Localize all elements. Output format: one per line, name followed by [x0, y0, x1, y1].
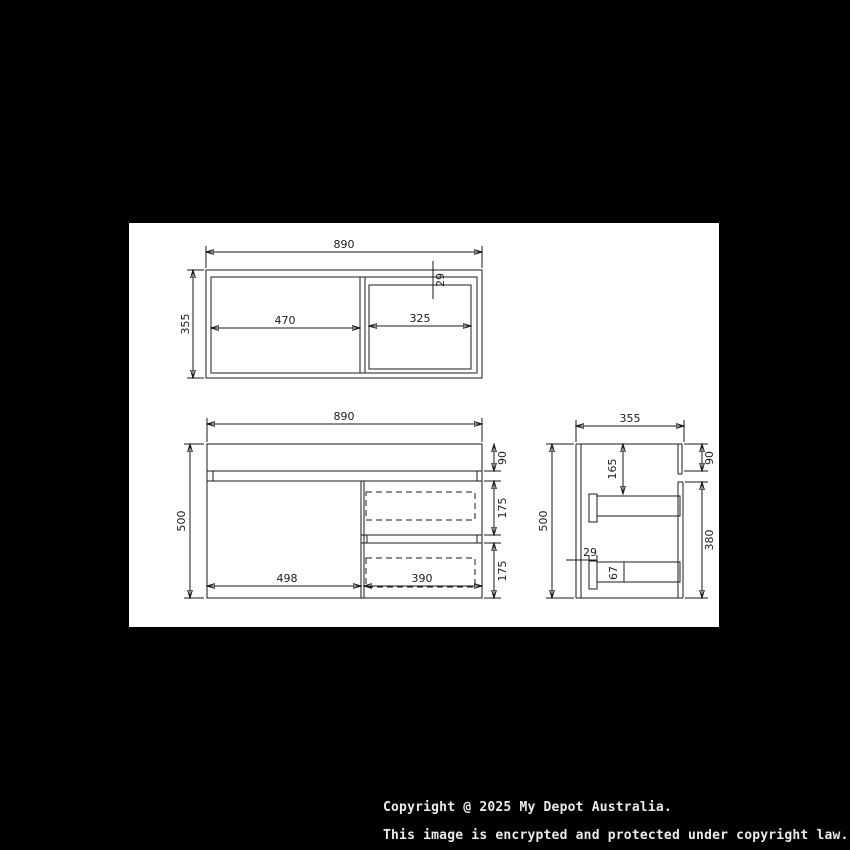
plan-back-rail-dim: 29 — [434, 273, 447, 287]
side-runner-height-dim: 67 — [607, 566, 620, 580]
plan-left-internal-dim: 470 — [275, 314, 296, 327]
side-front-lip-dim: 29 — [583, 546, 597, 559]
side-runner1-lip — [589, 494, 597, 522]
side-counter-dim: 90 — [703, 451, 716, 465]
front-drawer1-dim: 175 — [496, 498, 509, 519]
copyright-footer: Copyright @ 2025 My Depot Australia. Thi… — [383, 794, 849, 850]
front-drawer2-dim: 175 — [496, 561, 509, 582]
plan-width-dim: 890 — [334, 238, 355, 251]
side-view: 355 500 90 380 165 — [537, 412, 716, 598]
side-runner1-rail — [597, 496, 680, 516]
copyright-line1: Copyright @ 2025 My Depot Australia. — [383, 794, 849, 822]
side-runner-offset-dim: 165 — [606, 459, 619, 480]
drawing-paper: 890 355 470 325 29 — [129, 223, 719, 627]
front-outer-frame — [207, 444, 482, 598]
side-height-dim: 500 — [537, 511, 550, 532]
front-door-width-dim: 498 — [277, 572, 298, 585]
plan-depth-dim: 355 — [179, 314, 192, 335]
front-height-dim: 500 — [175, 511, 188, 532]
front-drawer-width-dim: 390 — [412, 572, 433, 585]
side-body-dim: 380 — [703, 530, 716, 551]
front-width-dim: 890 — [334, 410, 355, 423]
plan-view: 890 355 470 325 29 — [179, 238, 482, 378]
technical-drawing: 890 355 470 325 29 — [129, 223, 719, 627]
copyright-line2: This image is encrypted and protected un… — [383, 822, 849, 850]
screenshot-stage: 890 355 470 325 29 — [0, 0, 850, 850]
plan-sink-internal-dim: 325 — [410, 312, 431, 325]
front-drawer1-hidden-box — [366, 492, 475, 520]
front-view: 890 500 90 175 175 — [175, 410, 509, 598]
front-counter-dim: 90 — [496, 451, 509, 465]
side-depth-dim: 355 — [620, 412, 641, 425]
side-runner2-lip — [589, 561, 597, 589]
plan-inner-frame — [211, 277, 477, 373]
plan-sink-cutout — [369, 285, 471, 369]
